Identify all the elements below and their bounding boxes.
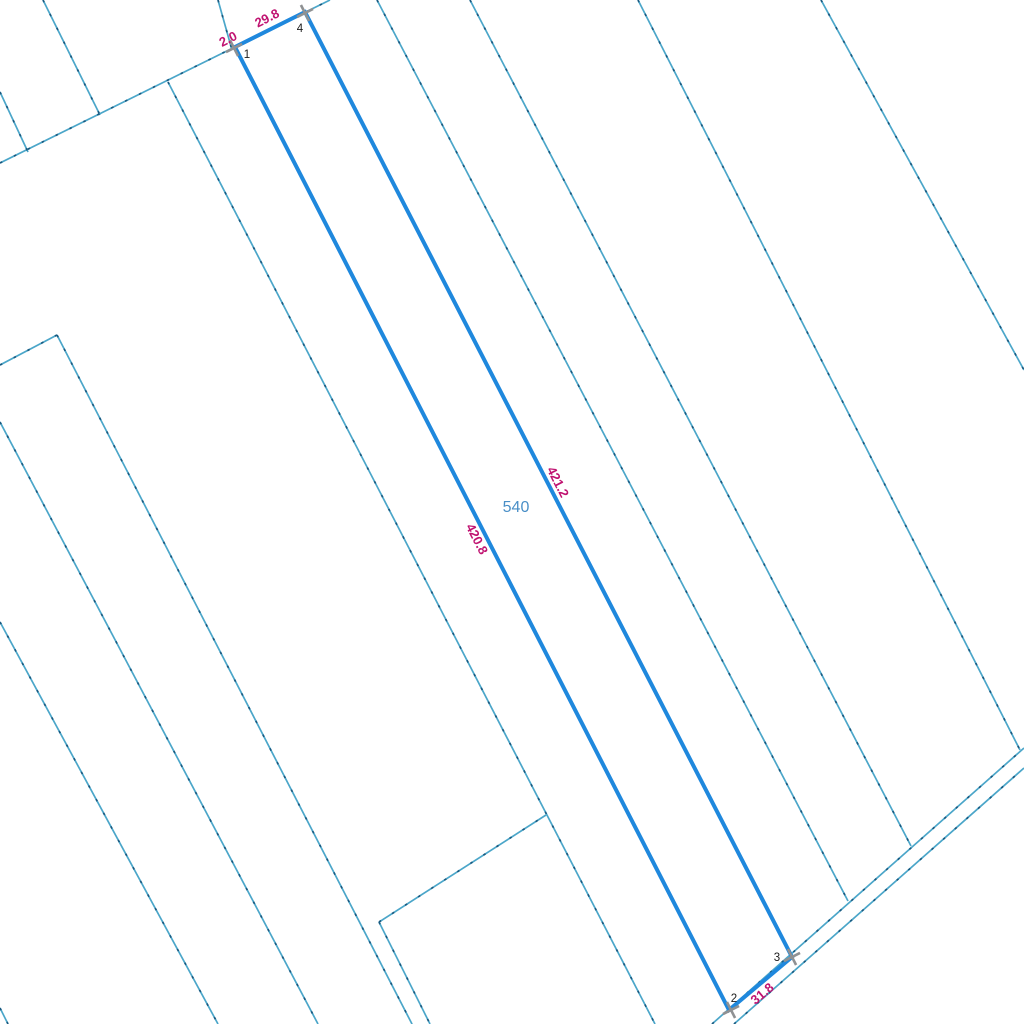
road-edge-line: [734, 768, 1024, 1024]
parcel-boundary-line: [0, 1008, 8, 1024]
vertex-number-label: 1: [244, 49, 250, 61]
boundary-dot-overlay: [638, 0, 1020, 750]
cadastral-map[interactable]: 2.0 29.8 421.2 420.8 31.8 540 1 4 2 3: [0, 0, 1024, 1024]
parcel-boundary-line: [470, 0, 911, 846]
parcel-boundary-line: [377, 0, 848, 901]
vertex-number-label: 3: [774, 952, 780, 964]
vertex-number-label: 2: [731, 993, 737, 1005]
cadastral-map-canvas[interactable]: 2.0 29.8 421.2 420.8 31.8 540 1 4 2 3: [0, 0, 1024, 1024]
labels-layer: 2.0 29.8 421.2 420.8 31.8 540 1 4 2 3: [216, 6, 780, 1008]
parcel-number-label: 540: [503, 499, 530, 516]
edge-length-label-bottom: 31.8: [748, 980, 777, 1008]
vertex-cross-marker: [293, 1, 317, 25]
vertex-number-label: 4: [297, 23, 304, 35]
parcel-boundary-line: [0, 422, 318, 1024]
parcel-boundary-line: [379, 815, 546, 922]
